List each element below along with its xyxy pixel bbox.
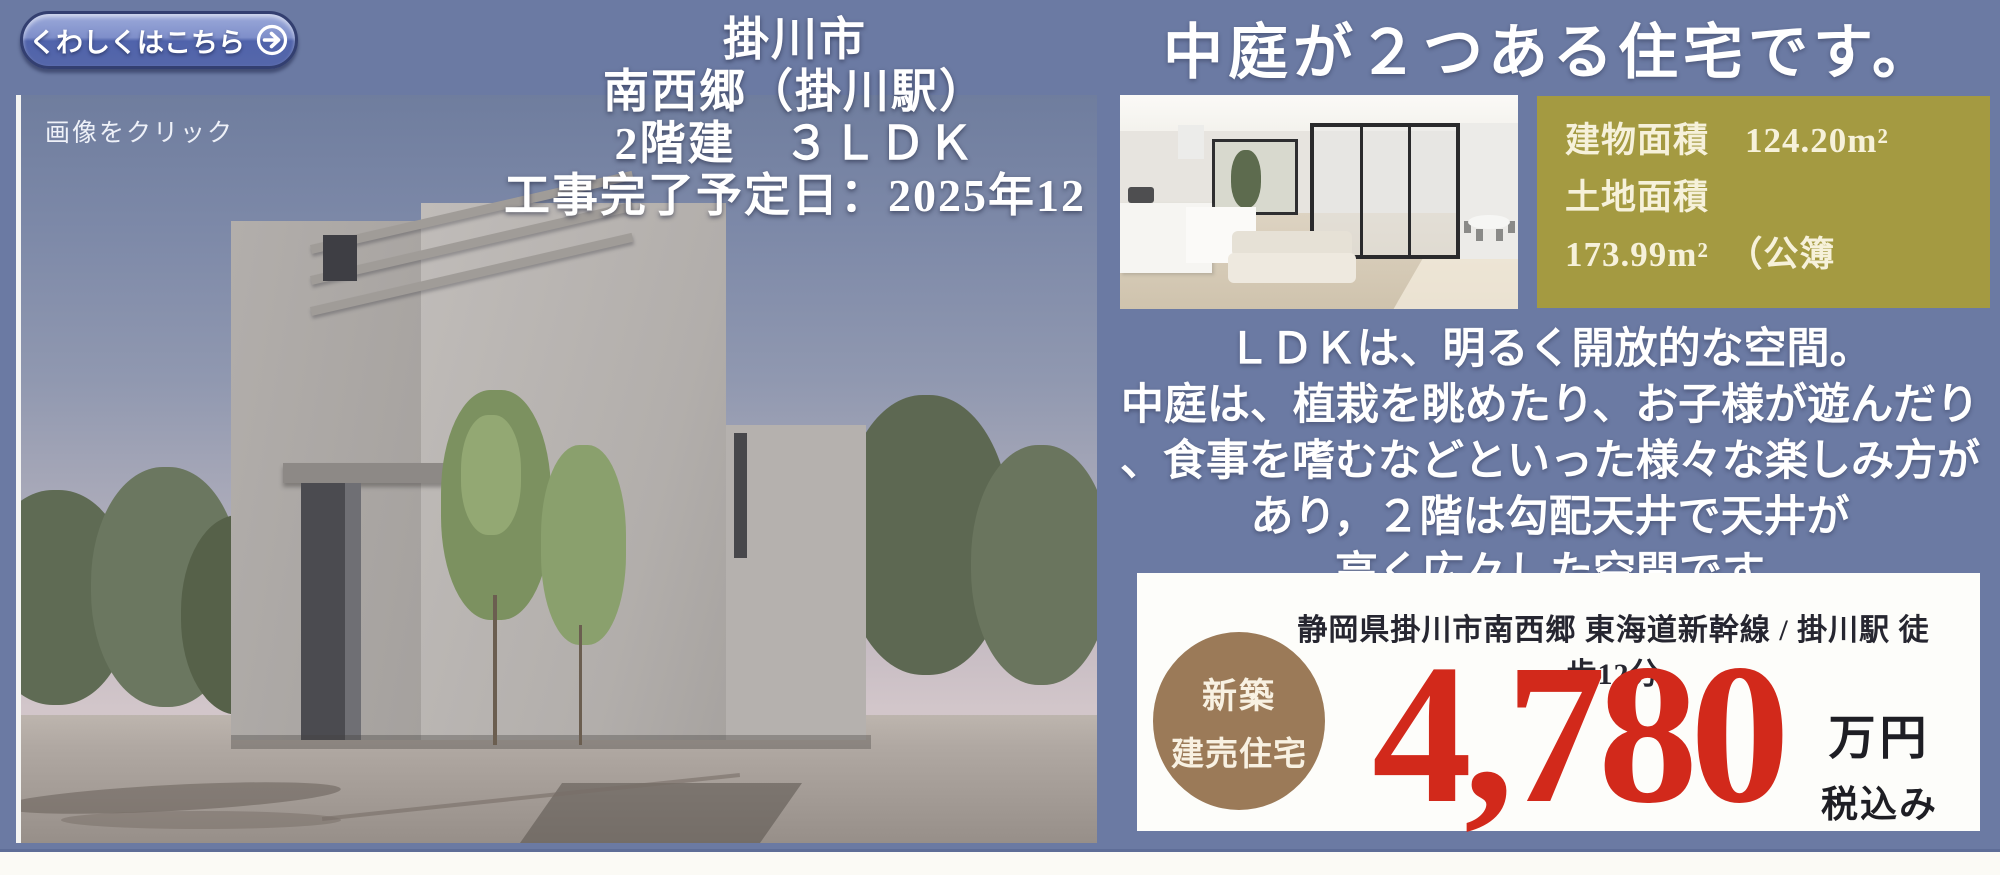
description-line: ＬＤＫは、明るく開放的な空間。 — [1100, 322, 2000, 378]
price-box: 静岡県掛川市南西郷 東海道新幹線 / 掛川駅 徒歩12分 新築 建売住宅 4,7… — [1137, 573, 1980, 831]
tree-trunk — [579, 625, 582, 745]
interior-photo — [1120, 95, 1518, 309]
photo-caption: 画像をクリック — [45, 113, 234, 149]
building-area: 建物面積 124.20m² — [1565, 112, 1990, 169]
chair — [1496, 229, 1503, 241]
range-hood — [1178, 125, 1204, 159]
house-right-wing — [726, 425, 866, 740]
price-unit: 万円 — [1821, 699, 1938, 768]
tree-shadow — [61, 811, 341, 829]
kitchen-appliance — [1128, 187, 1154, 203]
description-line: 、食事を嗜むなどといった様々な楽しみ方が — [1100, 434, 2000, 490]
area-info-box: 建物面積 124.20m² 土地面積 173.99m² （公簿 — [1537, 96, 1990, 308]
property-title-line: 2階建 ３ＬＤＫ — [395, 118, 1195, 170]
badge-label: 新築 — [1202, 668, 1276, 719]
bottom-strip — [0, 849, 2000, 875]
arrow-right-circle-icon — [255, 23, 289, 57]
description-line: あり，２階は勾配天井で天井が — [1100, 490, 2000, 546]
property-title-line: 掛川市 — [395, 14, 1195, 66]
round-table — [1468, 215, 1510, 229]
land-area-label: 土地面積 — [1565, 169, 1990, 226]
foreground-tree-highlight — [461, 415, 521, 535]
entry-canopy — [283, 463, 451, 483]
courtyard-tree — [1231, 150, 1261, 208]
entry-recess — [301, 483, 345, 740]
chair — [1476, 229, 1483, 241]
new-build-badge: 新築 建売住宅 — [1153, 632, 1325, 810]
property-title: 掛川市 南西郷（掛川駅） 2階建 ３ＬＤＫ 工事完了予定日：2025年12 — [395, 14, 1195, 222]
land-area-value: 173.99m² （公簿 — [1565, 226, 1990, 283]
details-button[interactable]: くわしくはこちら — [20, 11, 298, 69]
headline: 中庭が２つある住宅です。 — [1100, 4, 2000, 91]
far-room — [1460, 123, 1518, 259]
property-title-line: 工事完了予定日：2025年12 — [395, 170, 1195, 222]
description-line: 中庭は、植栽を眺めたり、お子様が遊んだり — [1100, 378, 2000, 434]
description: ＬＤＫは、明るく開放的な空間。 中庭は、植栽を眺めたり、お子様が遊んだり 、食事… — [1100, 322, 2000, 602]
badge-label: 建売住宅 — [1171, 727, 1307, 775]
courtyard-window — [1212, 139, 1298, 215]
details-button-label: くわしくはこちら — [29, 21, 245, 60]
foreground-tree — [541, 445, 626, 645]
property-ad-banner: くわしくはこちら — [0, 0, 2000, 875]
property-title-line: 南西郷（掛川駅） — [395, 66, 1195, 118]
price-value: 4,780 — [1332, 635, 1822, 835]
sofa — [1228, 253, 1356, 283]
house-window — [323, 235, 357, 281]
glass-mullion — [1408, 127, 1411, 255]
glass-mullion — [1360, 127, 1363, 255]
tree-trunk — [493, 595, 497, 745]
entry-glass — [345, 483, 361, 740]
tree-right — [971, 445, 1097, 685]
house-base-shadow — [231, 735, 871, 749]
tax-note: 税込み — [1821, 774, 1938, 828]
wing-door-slot — [734, 433, 747, 558]
price-unit-block: 万円 税込み — [1821, 699, 1938, 828]
